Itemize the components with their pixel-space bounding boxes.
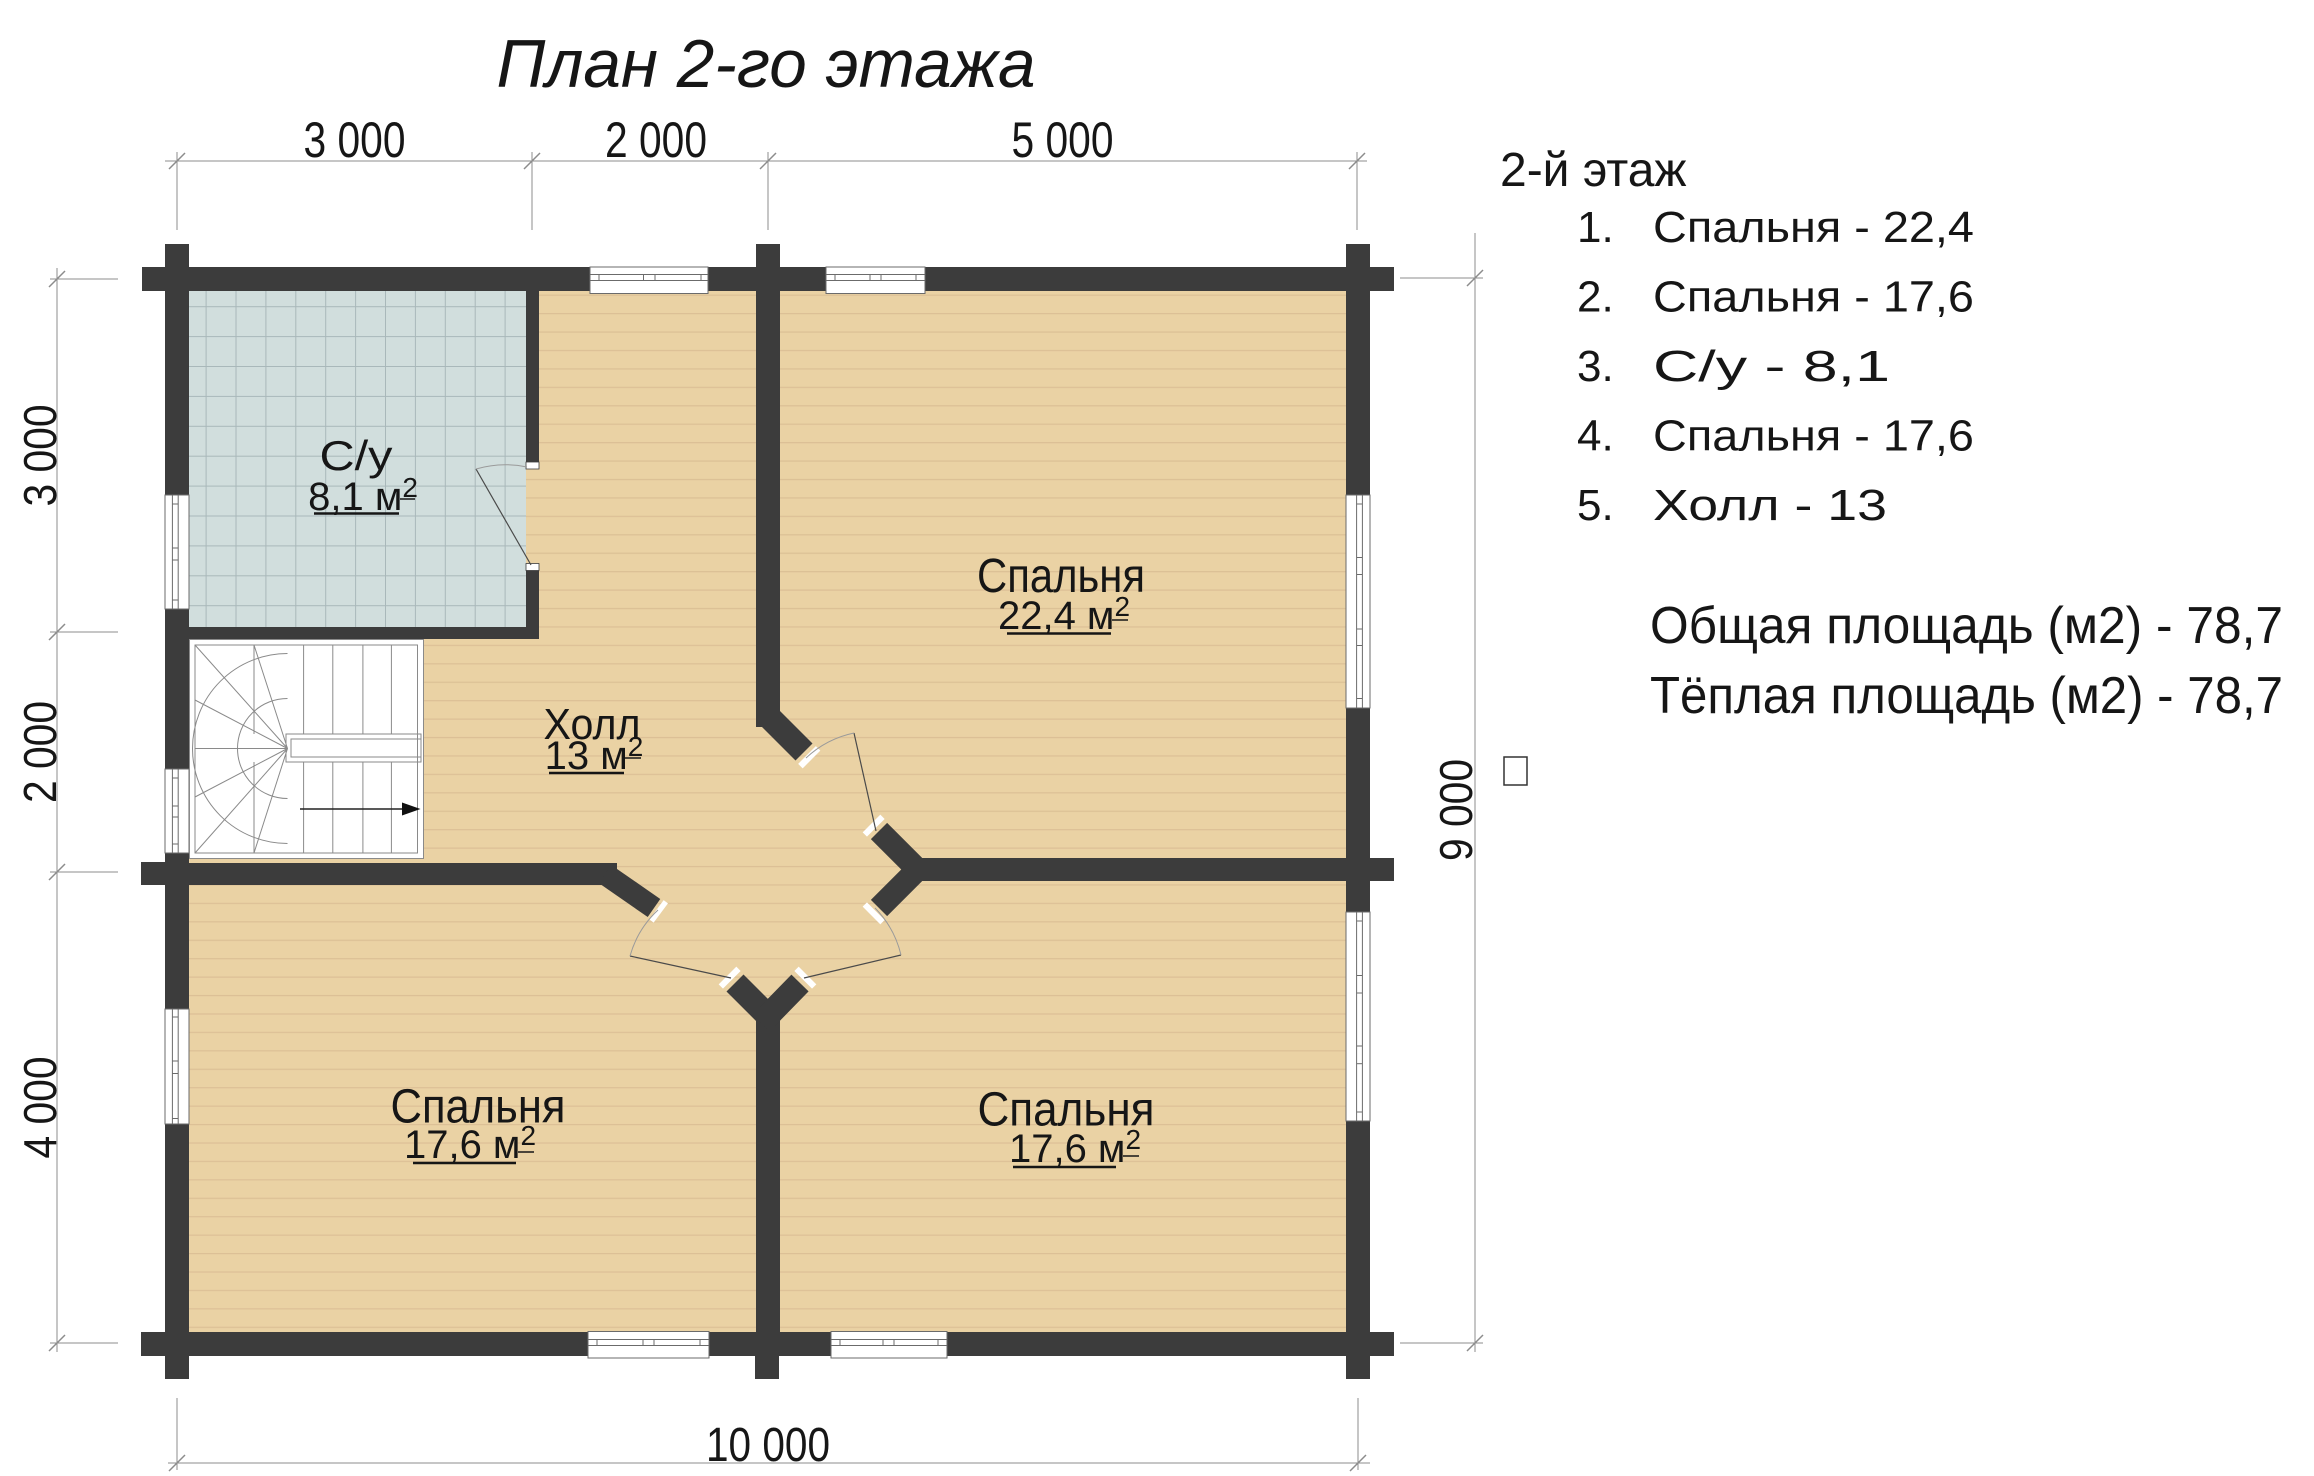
svg-text:4.: 4.: [1577, 412, 1614, 461]
svg-text:2 000: 2 000: [605, 112, 707, 168]
svg-text:3 000: 3 000: [14, 405, 66, 507]
svg-text:9 000: 9 000: [1430, 759, 1482, 861]
svg-text:Спальня - 22,4: Спальня - 22,4: [1653, 203, 1974, 252]
svg-text:17,6 м2: 17,6 м2: [1009, 1124, 1141, 1171]
svg-text:3 000: 3 000: [304, 112, 406, 168]
svg-text:17,6 м2: 17,6 м2: [404, 1120, 536, 1167]
svg-text:5.: 5.: [1577, 481, 1614, 530]
svg-text:Тёплая площадь (м2) - 78,7: Тёплая площадь (м2) - 78,7: [1650, 667, 2283, 725]
svg-text:8,1 м2: 8,1 м2: [308, 472, 418, 519]
svg-text:5 000: 5 000: [1012, 112, 1114, 168]
svg-text:4 000: 4 000: [14, 1057, 66, 1159]
svg-text:С/у: С/у: [320, 432, 393, 479]
svg-text:22,4 м2: 22,4 м2: [998, 591, 1130, 638]
svg-text:2 000: 2 000: [14, 701, 66, 803]
svg-text:10 000: 10 000: [706, 1419, 830, 1472]
svg-text:План 2-го этажа: План 2-го этажа: [497, 26, 1036, 102]
svg-text:Холл - 13: Холл - 13: [1653, 481, 1887, 530]
svg-text:Спальня - 17,6: Спальня - 17,6: [1653, 412, 1974, 461]
svg-text:2.: 2.: [1577, 273, 1614, 322]
svg-text:3.: 3.: [1577, 342, 1614, 391]
svg-text:2-й этаж: 2-й этаж: [1500, 144, 1687, 197]
svg-text:С/у - 8,1: С/у - 8,1: [1653, 342, 1890, 391]
svg-text:Общая площадь (м2) - 78,7: Общая площадь (м2) - 78,7: [1650, 597, 2283, 655]
svg-text:1.: 1.: [1577, 203, 1614, 252]
svg-text:Спальня - 17,6: Спальня - 17,6: [1653, 273, 1974, 322]
